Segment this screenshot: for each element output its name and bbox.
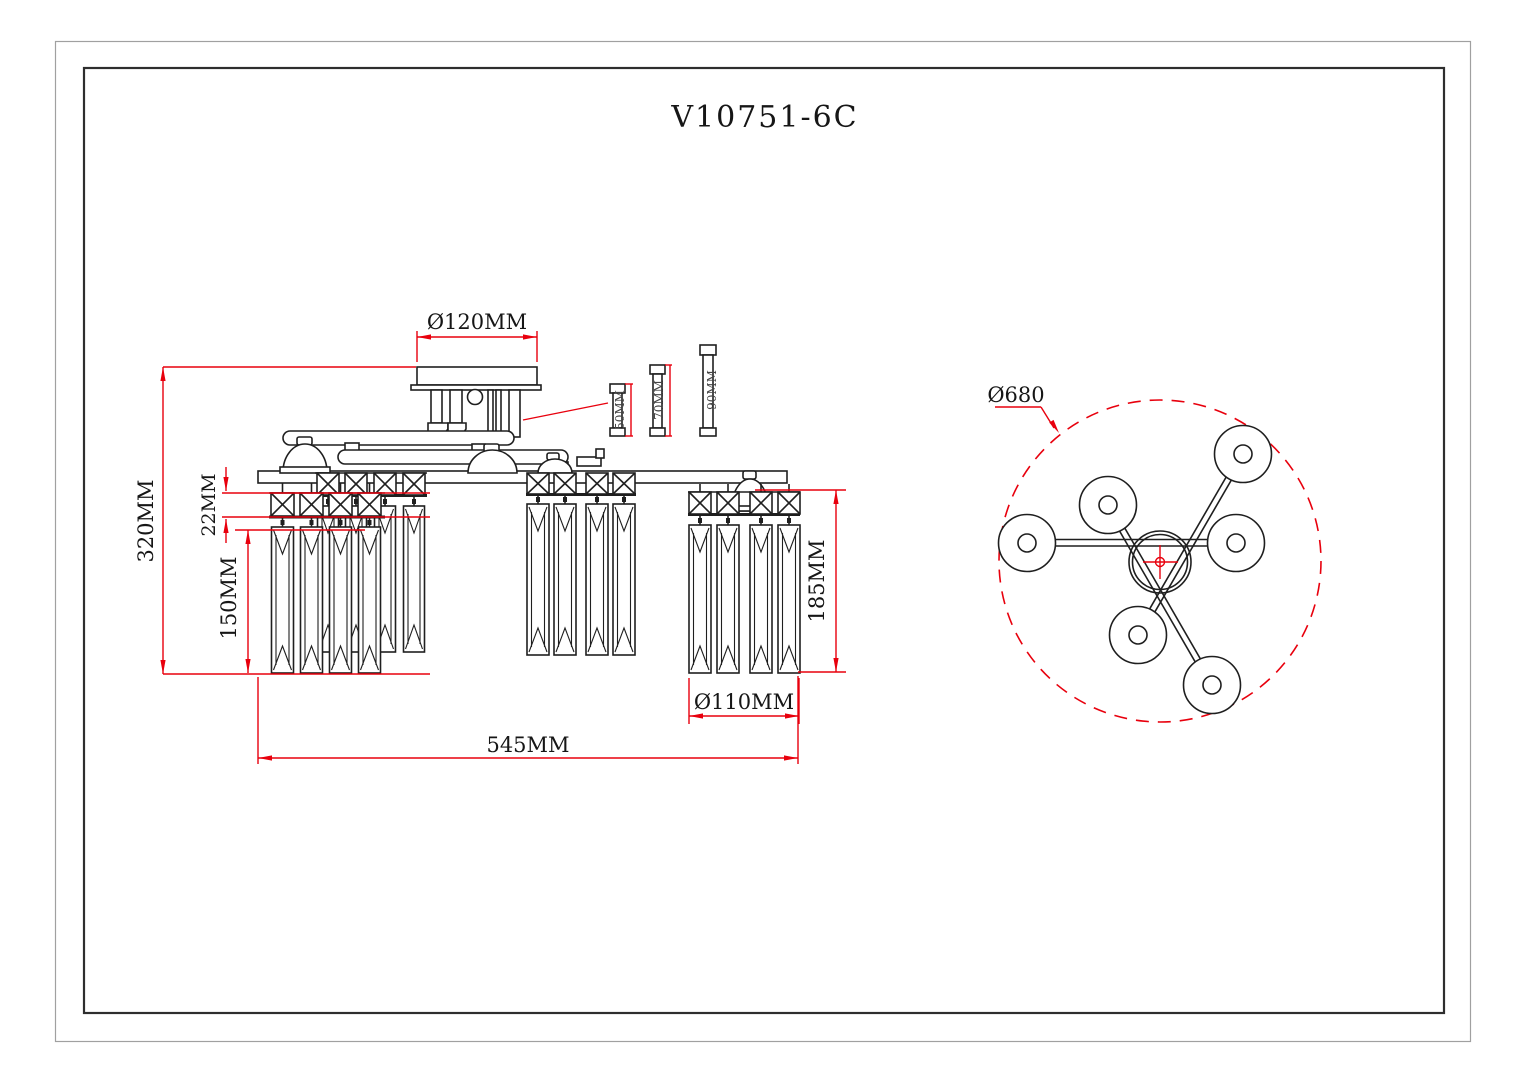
top-view [999, 400, 1322, 722]
canopy-screw-hole [468, 390, 483, 405]
lamp-head-5 [1110, 607, 1167, 664]
drawing-title: V10751-6C [670, 100, 858, 135]
dim-canopy-diameter: Ø120MM [427, 310, 527, 334]
drawing-page: V10751-6C [0, 0, 1528, 1080]
lamp-head-6 [1184, 657, 1241, 714]
dim-lamp-height: 185MM [805, 539, 829, 622]
dim-total-width: 545MM [486, 733, 569, 757]
prism-group-right [688, 484, 800, 673]
tube-length-90: 90MM [705, 370, 719, 410]
lamp-head-2 [1080, 477, 1137, 534]
prism-group-middle [526, 473, 636, 655]
lamp-head-4 [1208, 515, 1265, 572]
dim-bead-height: 22MM [198, 473, 220, 536]
dim-overall-diameter: Ø680 [987, 383, 1044, 407]
lamp-head-1 [999, 515, 1056, 572]
dim-total-height: 320MM [134, 479, 158, 562]
dim-lamp-diameter: Ø110MM [694, 690, 794, 714]
ceiling-canopy [411, 367, 541, 437]
dim-prism-length: 150MM [217, 556, 241, 639]
lamp-head-3 [1215, 426, 1272, 483]
crystal-prism-groups [269, 473, 800, 673]
dimension-lines [160, 331, 1061, 764]
tube-length-50: 50MM [613, 390, 627, 430]
technical-drawing-canvas: V10751-6C [0, 0, 1528, 1080]
tube-length-70: 70MM [652, 380, 666, 420]
